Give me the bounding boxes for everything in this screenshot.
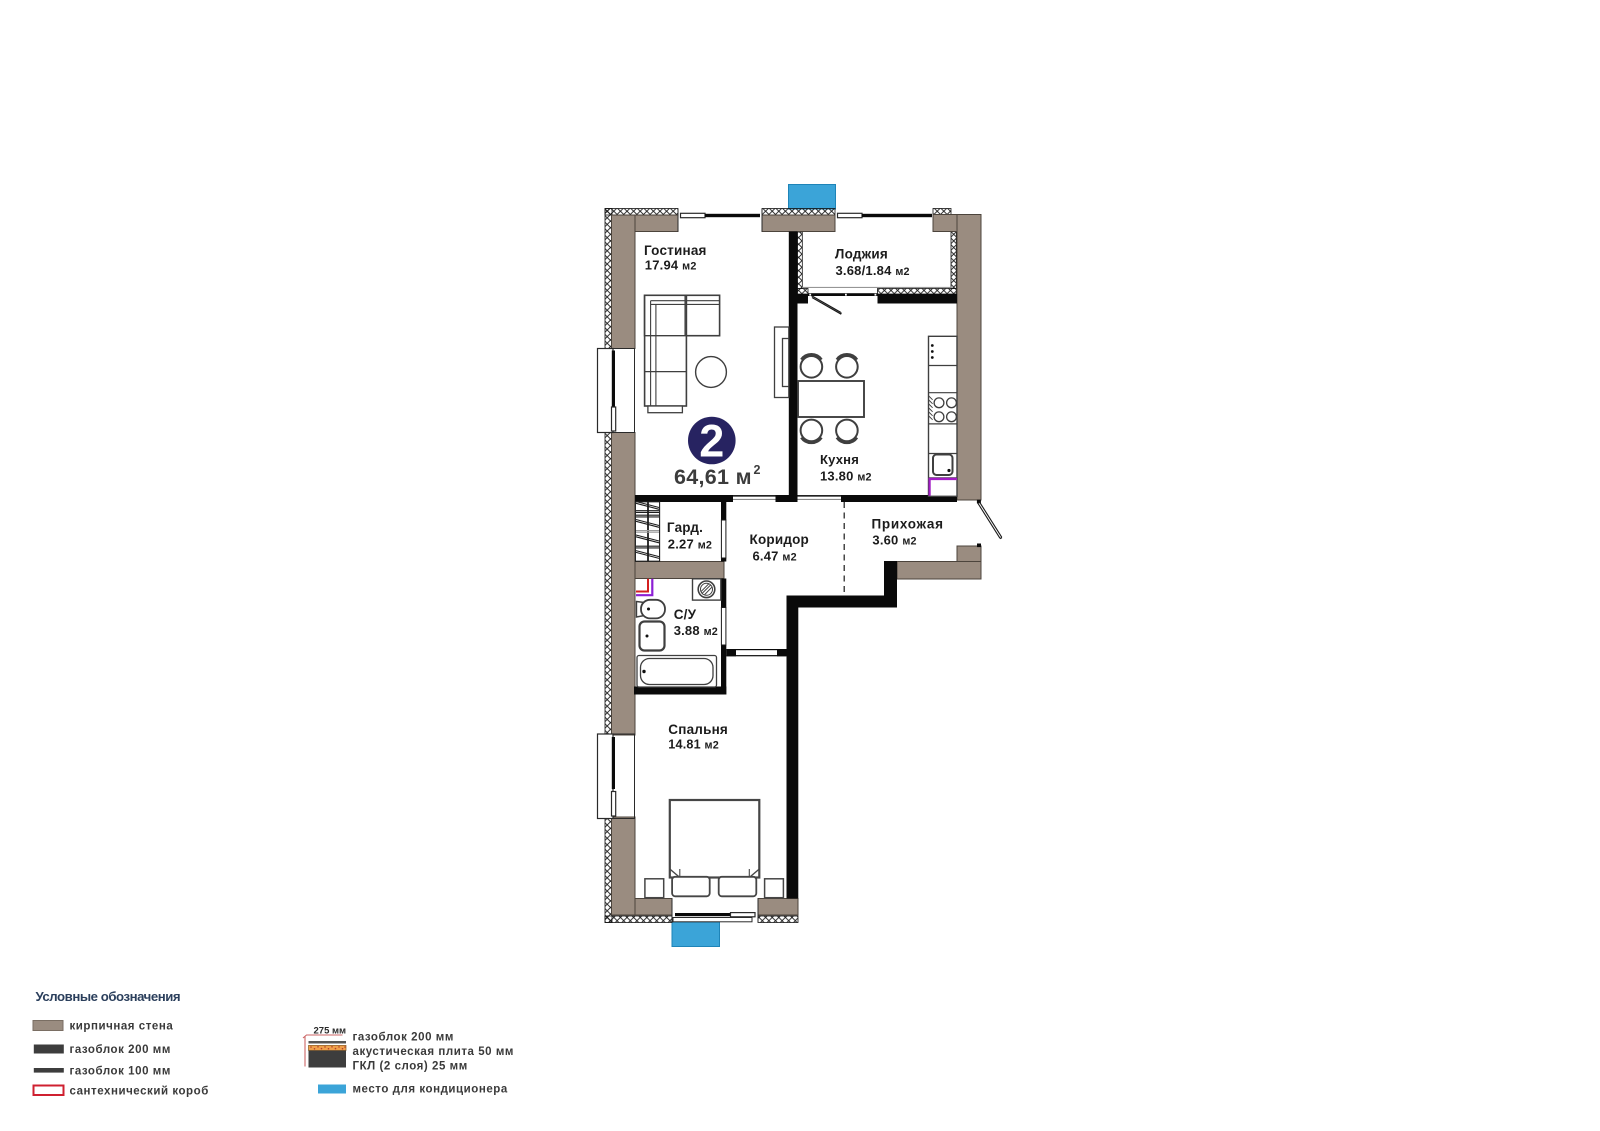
svg-text:6.47 м2: 6.47 м2 [753, 548, 797, 563]
svg-text:17.94 м2: 17.94 м2 [645, 258, 697, 273]
svg-text:2.27 м2: 2.27 м2 [668, 536, 712, 551]
svg-text:3.88 м2: 3.88 м2 [674, 623, 718, 638]
svg-text:14.81 м2: 14.81 м2 [668, 738, 719, 752]
svg-text:3.68/1.84 м2: 3.68/1.84 м2 [836, 263, 910, 278]
svg-text:Коридор: Коридор [750, 532, 810, 547]
svg-text:3.60 м2: 3.60 м2 [872, 533, 916, 548]
svg-text:Условные обозначения: Условные обозначения [36, 989, 181, 1004]
svg-text:сантехнический короб: сантехнический короб [70, 1086, 209, 1098]
svg-text:Гостиная: Гостиная [644, 243, 707, 258]
svg-text:газоблок 100 мм: газоблок 100 мм [70, 1066, 171, 1078]
svg-text:Прихожая: Прихожая [872, 517, 944, 532]
svg-text:газоблок 200 мм: газоблок 200 мм [70, 1044, 171, 1056]
svg-text:2: 2 [699, 416, 724, 467]
svg-text:акустическая плита 50 мм: акустическая плита 50 мм [353, 1046, 514, 1058]
svg-text:Лоджия: Лоджия [835, 246, 888, 261]
svg-text:С/У: С/У [674, 607, 697, 622]
svg-text:ГКЛ (2 слоя) 25 мм: ГКЛ (2 слоя) 25 мм [353, 1061, 468, 1073]
svg-text:кирпичная стена: кирпичная стена [70, 1021, 174, 1033]
svg-text:место для кондиционера: место для кондиционера [353, 1084, 508, 1096]
svg-text:13.80 м2: 13.80 м2 [820, 468, 872, 483]
svg-text:газоблок 200 мм: газоблок 200 мм [353, 1032, 454, 1044]
svg-text:Гард.: Гард. [667, 520, 703, 535]
svg-text:64,61 м: 64,61 м [674, 465, 752, 489]
svg-text:Кухня: Кухня [820, 452, 859, 467]
svg-text:2: 2 [754, 463, 761, 477]
svg-text:Спальня: Спальня [668, 722, 728, 737]
